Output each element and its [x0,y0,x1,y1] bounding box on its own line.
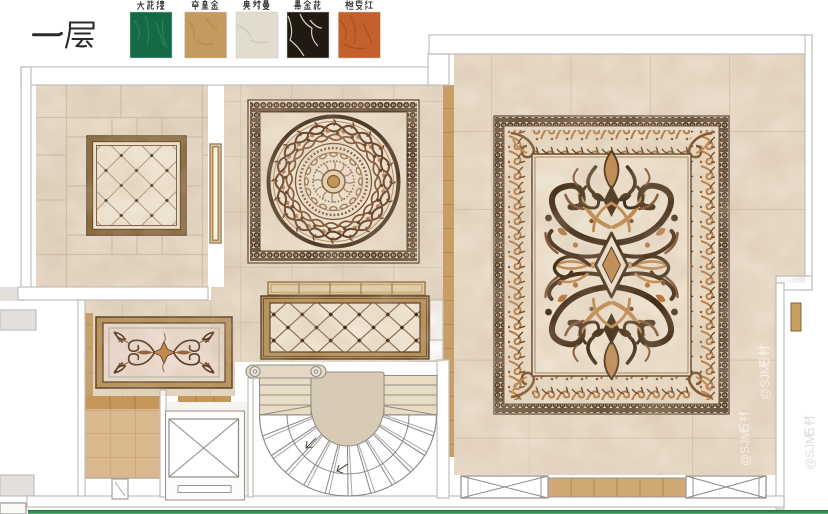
svg-text:@SJM: @SJM [758,364,772,400]
svg-text:@SJM: @SJM [738,430,752,466]
svg-text:@SJM: @SJM [803,434,817,470]
